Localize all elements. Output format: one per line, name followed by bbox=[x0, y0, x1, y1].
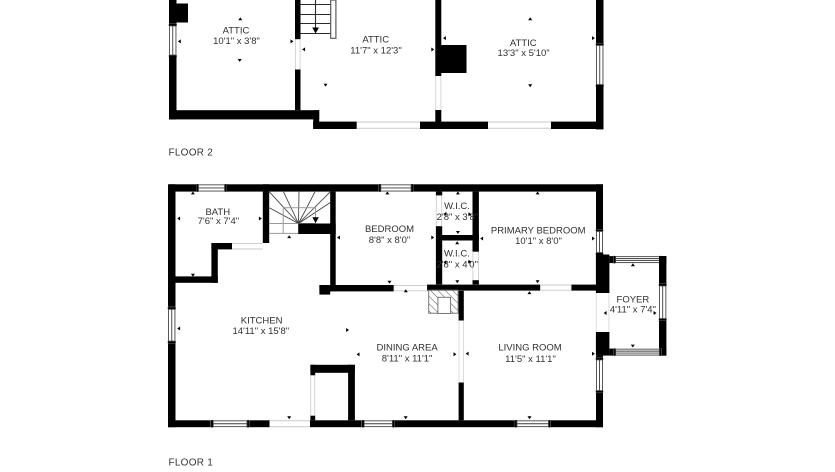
svg-text:LIVING ROOM: LIVING ROOM bbox=[498, 343, 561, 354]
svg-text:10'1" x 8'0": 10'1" x 8'0" bbox=[515, 236, 562, 247]
svg-text:11'5" x 11'1": 11'5" x 11'1" bbox=[505, 354, 556, 365]
svg-text:FLOOR 2: FLOOR 2 bbox=[169, 148, 214, 159]
svg-text:11'7" x 12'3": 11'7" x 12'3" bbox=[350, 45, 401, 56]
svg-text:W.I.C.: W.I.C. bbox=[444, 249, 470, 260]
svg-text:KITCHEN: KITCHEN bbox=[241, 316, 283, 327]
svg-text:DINING AREA: DINING AREA bbox=[376, 342, 438, 353]
svg-text:2'8" x 4'0": 2'8" x 4'0" bbox=[436, 260, 478, 271]
svg-text:BEDROOM: BEDROOM bbox=[365, 224, 414, 235]
svg-text:PRIMARY BEDROOM: PRIMARY BEDROOM bbox=[491, 225, 586, 236]
svg-text:W.I.C.: W.I.C. bbox=[444, 201, 470, 212]
svg-text:14'11" x 15'8": 14'11" x 15'8" bbox=[232, 326, 289, 337]
svg-text:ATTIC: ATTIC bbox=[223, 26, 250, 37]
svg-text:13'3" x 5'10": 13'3" x 5'10" bbox=[498, 48, 550, 59]
svg-text:ATTIC: ATTIC bbox=[362, 35, 389, 46]
svg-text:7'6" x 7'4": 7'6" x 7'4" bbox=[198, 216, 240, 227]
svg-text:8'11" x 11'1": 8'11" x 11'1" bbox=[382, 353, 433, 364]
svg-text:4'11" x 7'4": 4'11" x 7'4" bbox=[610, 304, 656, 315]
svg-text:2'8" x 3'8": 2'8" x 3'8" bbox=[437, 212, 479, 223]
svg-text:10'1" x 3'8": 10'1" x 3'8" bbox=[213, 36, 260, 47]
svg-text:8'8" x 8'0": 8'8" x 8'0" bbox=[369, 235, 411, 246]
svg-text:FLOOR 1: FLOOR 1 bbox=[169, 457, 214, 467]
